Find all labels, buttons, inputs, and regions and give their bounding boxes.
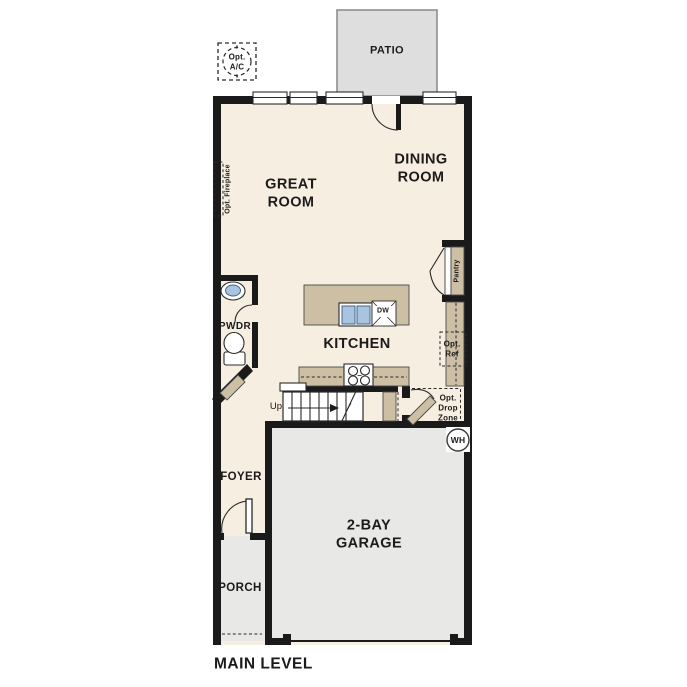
up-label: Up <box>270 401 282 413</box>
powder-sink <box>221 282 245 300</box>
porch-label: PORCH <box>218 581 262 595</box>
windows <box>253 92 456 104</box>
pwdr-label: PWDR <box>219 321 251 333</box>
kitchen-counter <box>299 364 409 386</box>
dw-label: DW <box>377 308 389 317</box>
wh-label: WH <box>451 435 466 445</box>
window <box>290 92 317 104</box>
patio-label: PATIO <box>370 44 404 57</box>
foyer-label: FOYER <box>220 470 262 484</box>
pantry-label: Pantry <box>454 260 463 283</box>
cooktop <box>344 364 373 386</box>
page-title: MAIN LEVEL <box>214 656 313 675</box>
dining-room-label: DINING ROOM <box>394 151 447 186</box>
stair-side-wall <box>383 392 396 421</box>
window <box>253 92 287 104</box>
opt-drop-zone-label: Opt. Drop Zone <box>438 393 458 422</box>
garage-label: 2-BAY GARAGE <box>336 517 402 552</box>
opt-ac-label: Opt. A/C <box>229 52 246 72</box>
great-room-label: GREAT ROOM <box>265 176 317 211</box>
opt-ref-label: Opt. Ref <box>444 339 461 359</box>
kitchen-island <box>304 285 409 326</box>
powder-toilet <box>224 333 245 366</box>
island-sink <box>339 303 372 326</box>
window <box>423 92 456 104</box>
floor-plan: PATIO Opt. A/C GREAT ROOM DINING ROOM Op… <box>0 0 687 687</box>
opt-fireplace-label: Opt. Fireplace <box>225 164 234 213</box>
kitchen-label: KITCHEN <box>323 336 390 354</box>
stair-half-wall-cap <box>280 383 306 391</box>
window <box>326 92 363 104</box>
